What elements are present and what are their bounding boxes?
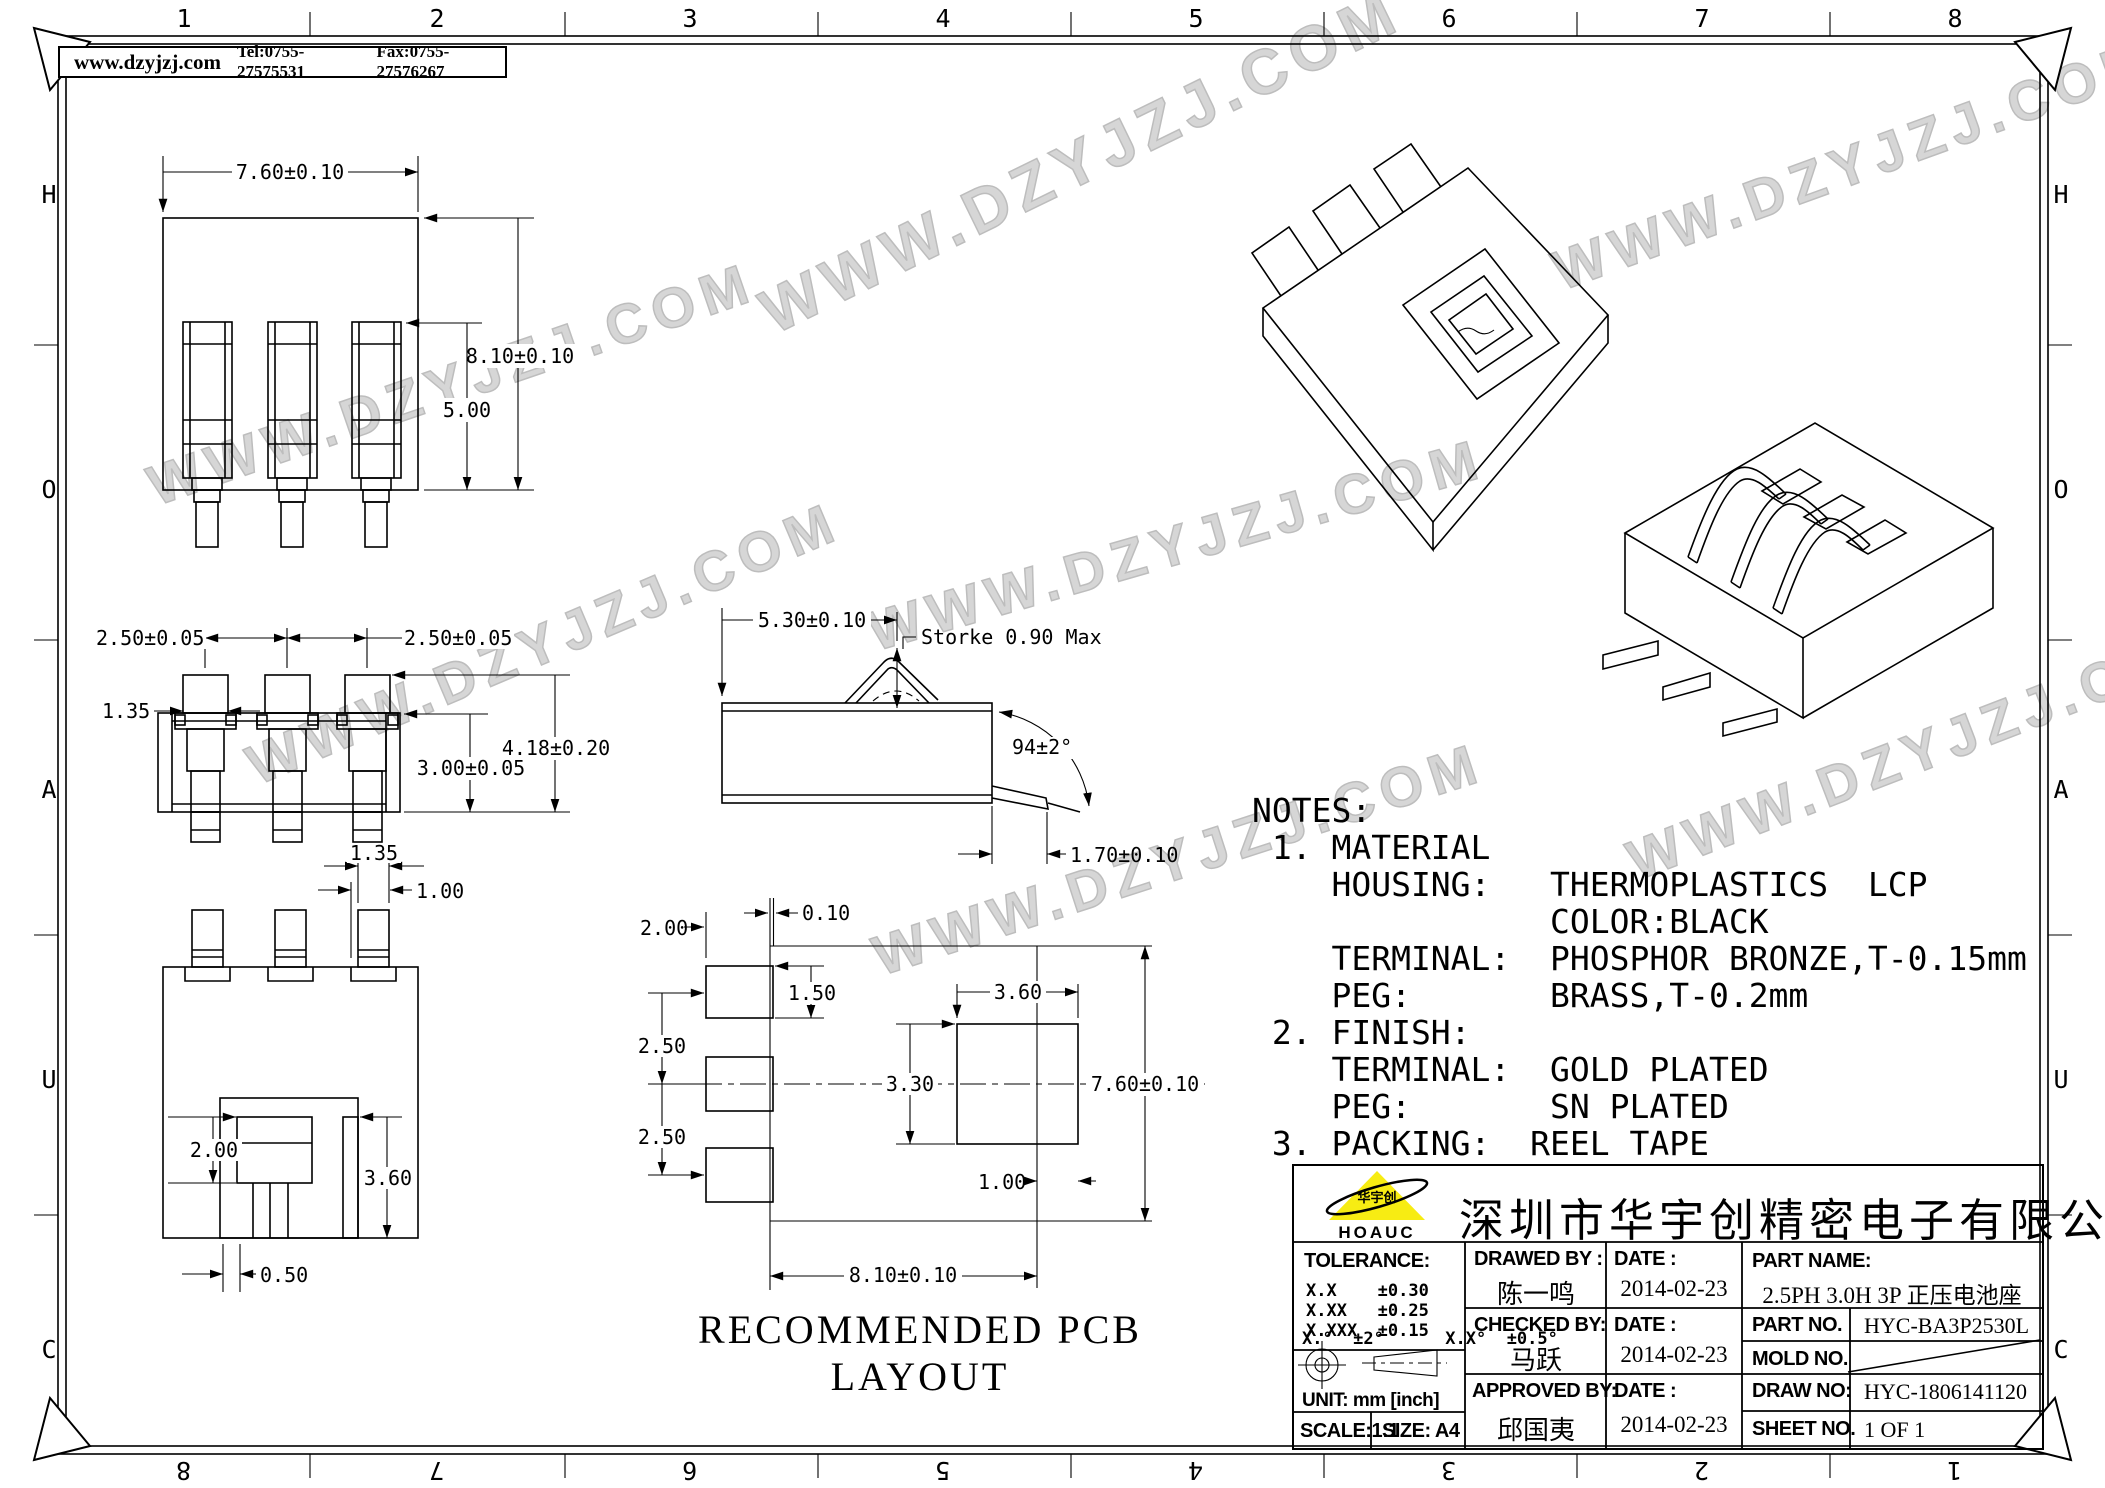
fax-text: Fax:0755-27576267 (377, 42, 505, 82)
part-no-value: HYC-BA3P2530L (1864, 1313, 2029, 1339)
grid-col-label: 5 (935, 1456, 950, 1485)
grid-row-label: O (36, 475, 62, 504)
dim-label: 7.60±0.10 (1091, 1072, 1199, 1096)
dim-label: 3.30 (886, 1072, 934, 1096)
grid-row-label: O (2048, 475, 2074, 504)
dim-label: 0.50 (260, 1263, 308, 1287)
dim-top-pitch-left: 2.50±0.05 (94, 626, 287, 668)
dim-label: Storke 0.90 Max (921, 625, 1102, 649)
part-name-label: PART NAME: (1752, 1250, 1871, 1273)
date-value: 2014-02-23 (1612, 1342, 1736, 1368)
dim-label: 2.50±0.05 (96, 626, 204, 650)
grid-col-label: 1 (164, 4, 204, 33)
approved-by-name: 邱国夷 (1472, 1410, 1600, 1447)
iso-view-top (1252, 144, 1608, 550)
dim-pcb-pad-height: 1.50 (775, 966, 840, 1018)
note-line: TERMINAL: GOLD PLATED (1252, 1051, 2027, 1088)
dim-bottom-slot: 3.60 (360, 1117, 416, 1238)
dim-label: 5.30±0.10 (758, 608, 866, 632)
tolerance-row: X.XX ±0.25 (1306, 1301, 1429, 1321)
dim-pcb-length: 8.10±0.10 (770, 1263, 1037, 1287)
dim-front-height: 8.10±0.10 (424, 218, 578, 490)
corner-arrow-icon (34, 1398, 90, 1460)
dim-bottom-gap: 1.00 (318, 879, 464, 958)
grid-row-label: U (36, 1065, 62, 1094)
dim-label: 5.00 (443, 398, 491, 422)
dim-pcb-gap: 0.10 (744, 901, 850, 925)
tel-text: Tel:0755-27575531 (237, 42, 361, 82)
grid-col-label: 2 (417, 4, 457, 33)
grid-row-label: A (36, 775, 62, 804)
dim-pcb-pitch1: 2.50 (634, 993, 704, 1084)
dim-side-angle: 94±2° (999, 712, 1089, 806)
grid-col-label: 5 (1176, 4, 1216, 33)
checked-by-label: CHECKED BY: (1474, 1314, 1606, 1337)
draw-no-value: HYC-1806141120 (1864, 1379, 2027, 1405)
note-line: 2. FINISH: (1252, 1014, 2027, 1051)
grid-col-label: 6 (1429, 4, 1469, 33)
date-label: DATE : (1614, 1380, 1676, 1403)
pcb-layout-title: RECOMMENDED PCB LAYOUT (640, 1306, 1200, 1400)
dim-top-pitch-right: 2.50±0.05 (287, 626, 514, 668)
grid-row-label: H (36, 180, 62, 209)
dim-pcb-slot-width: 3.60 (957, 980, 1078, 1018)
logo-mark-text: 华宇创 (1357, 1190, 1396, 1205)
dim-label: 1.70±0.10 (1070, 843, 1178, 867)
note-line: TERMINAL: PHOSPHOR BRONZE,T-0.15mm (1252, 940, 2027, 977)
approved-by-label: APPROVED BY: (1472, 1380, 1617, 1403)
part-name-value: 2.5PH 3.0H 3P 正压电池座 (1746, 1276, 2038, 1310)
pcb-layout-view: 7.60±0.10 8.10±0.10 1.00 3.60 3.30 (634, 898, 1205, 1290)
grid-col-label: 2 (1694, 1456, 1709, 1485)
note-line: NOTES: (1252, 792, 2027, 829)
dim-bottom-tab: 1.35 (324, 841, 424, 903)
side-view: Storke 0.90 Max 5.30±0.10 94±2° 1.70±0.1… (722, 608, 1178, 867)
front-view: 7.60±0.10 8.10±0.10 5.00 (163, 156, 578, 547)
note-line: PEG: BRASS,T-0.2mm (1252, 977, 2027, 1014)
dim-pcb-pad-width: 2.00 (640, 912, 706, 958)
dim-top-total: 4.18±0.20 (392, 675, 610, 812)
note-line: 3. PACKING: REEL TAPE (1252, 1125, 2027, 1162)
drawed-by-name: 陈一鸣 (1472, 1274, 1600, 1311)
note-line: COLOR:BLACK (1252, 903, 2027, 940)
note-line: PEG: SN PLATED (1252, 1088, 2027, 1125)
dim-label: 1.00 (978, 1170, 1026, 1194)
grid-row-label: C (36, 1335, 62, 1364)
dim-label: 1.00 (416, 879, 464, 903)
grid-row-label: C (2048, 1335, 2074, 1364)
tolerance-title: TOLERANCE: (1304, 1250, 1430, 1273)
grid-col-label: 4 (923, 4, 963, 33)
company-name: 深圳市华宇创精密电子有限公司 (1459, 1184, 2105, 1249)
tolerance-angles: X.° ±2° X.X° ±0.5° (1302, 1329, 1462, 1349)
dim-label: 0.10 (802, 901, 850, 925)
dim-label: 2.00 (190, 1138, 238, 1162)
grid-col-label: 7 (1682, 4, 1722, 33)
top-view: 2.50±0.05 2.50±0.05 1.35 3.00±0.05 (94, 626, 610, 842)
tolerance-row: X.X ±0.30 (1306, 1281, 1429, 1301)
grid-col-label: 4 (1188, 1456, 1203, 1485)
website-text: www.dzyjzj.com (74, 50, 221, 75)
bottom-view: 1.35 1.00 2.00 3.60 0. (163, 841, 464, 1292)
unit-label: UNIT: mm [inch] (1302, 1390, 1439, 1412)
dim-pcb-height: 7.60±0.10 (1086, 946, 1204, 1221)
note-line: HOUSING: THERMOPLASTICS LCP (1252, 866, 2027, 903)
dim-label: 1.35 (350, 841, 398, 865)
size-label: SIZE: A4 (1382, 1420, 1460, 1443)
dim-front-width: 7.60±0.10 (163, 156, 418, 212)
grid-col-label: 8 (176, 1456, 191, 1485)
header-contact-bar: www.dzyjzj.com Tel:0755-27575531 Fax:075… (58, 46, 507, 78)
title-block: 华宇创 HOAUC 深圳市华宇创精密电子有限公司 TOLERANCE: X.X … (1292, 1164, 2044, 1450)
dim-side-depth: 5.30±0.10 (722, 608, 897, 696)
dim-label: 2.50 (638, 1034, 686, 1058)
sheet-no-value: 1 OF 1 (1864, 1417, 1925, 1443)
dim-label: 7.60±0.10 (236, 160, 344, 184)
company-logo-icon: 华宇创 HOAUC (1302, 1168, 1452, 1242)
dim-pcb-pitch2: 2.50 (634, 1084, 704, 1175)
grid-col-label: 1 (1947, 1456, 1962, 1485)
dim-label: 3.60 (364, 1166, 412, 1190)
date-label: DATE : (1614, 1314, 1676, 1337)
dim-label: 1.35 (102, 699, 150, 723)
grid-col-label: 7 (429, 1456, 444, 1485)
grid-col-label: 6 (682, 1456, 697, 1485)
grid-row-label: U (2048, 1065, 2074, 1094)
note-line: 1. MATERIAL (1252, 829, 2027, 866)
drawed-by-label: DRAWED BY : (1474, 1248, 1603, 1271)
grid-col-label: 3 (670, 4, 710, 33)
grid-col-label: 3 (1441, 1456, 1456, 1485)
date-value: 2014-02-23 (1612, 1412, 1736, 1438)
dim-label: 2.50 (638, 1125, 686, 1149)
grid-row-label: A (2048, 775, 2074, 804)
dim-label: 2.50±0.05 (404, 626, 512, 650)
dim-side-pin: 1.70±0.10 (958, 806, 1178, 867)
notes-block: NOTES: 1. MATERIAL HOUSING: THERMOPLASTI… (1252, 792, 2027, 1162)
drawing-sheet: WWW.DZYJZJ.COM WWW.DZYJZJ.COM WWW.DZYJZJ… (0, 0, 2105, 1488)
dim-label: 94±2° (1012, 735, 1072, 759)
part-no-label: PART NO. (1752, 1314, 1842, 1337)
dim-label: 2.00 (640, 916, 688, 940)
dim-bottom-offset: 0.50 (182, 1244, 308, 1292)
mold-no-label: MOLD NO. (1752, 1348, 1848, 1371)
date-value: 2014-02-23 (1612, 1276, 1736, 1302)
checked-by-name: 马跃 (1472, 1340, 1600, 1377)
dim-label: 3.60 (994, 980, 1042, 1004)
iso-view-front (1603, 423, 1993, 736)
grid-row-label: H (2048, 180, 2074, 209)
sheet-no-label: SHEET NO. (1752, 1418, 1855, 1441)
dim-label: 8.10±0.10 (466, 344, 574, 368)
dim-label: 8.10±0.10 (849, 1263, 957, 1287)
logo-text: HOAUC (1338, 1223, 1415, 1242)
draw-no-label: DRAW NO: (1752, 1380, 1851, 1403)
corner-arrow-icon (2015, 28, 2071, 90)
dim-pcb-slot-height: 3.30 (882, 1024, 955, 1144)
dim-bottom-inner: 2.00 (168, 1117, 242, 1183)
grid-col-label: 8 (1935, 4, 1975, 33)
dim-label: 1.50 (788, 981, 836, 1005)
dim-top-body: 3.00±0.05 (404, 714, 570, 812)
dim-label: 4.18±0.20 (502, 736, 610, 760)
date-label: DATE : (1614, 1248, 1676, 1271)
